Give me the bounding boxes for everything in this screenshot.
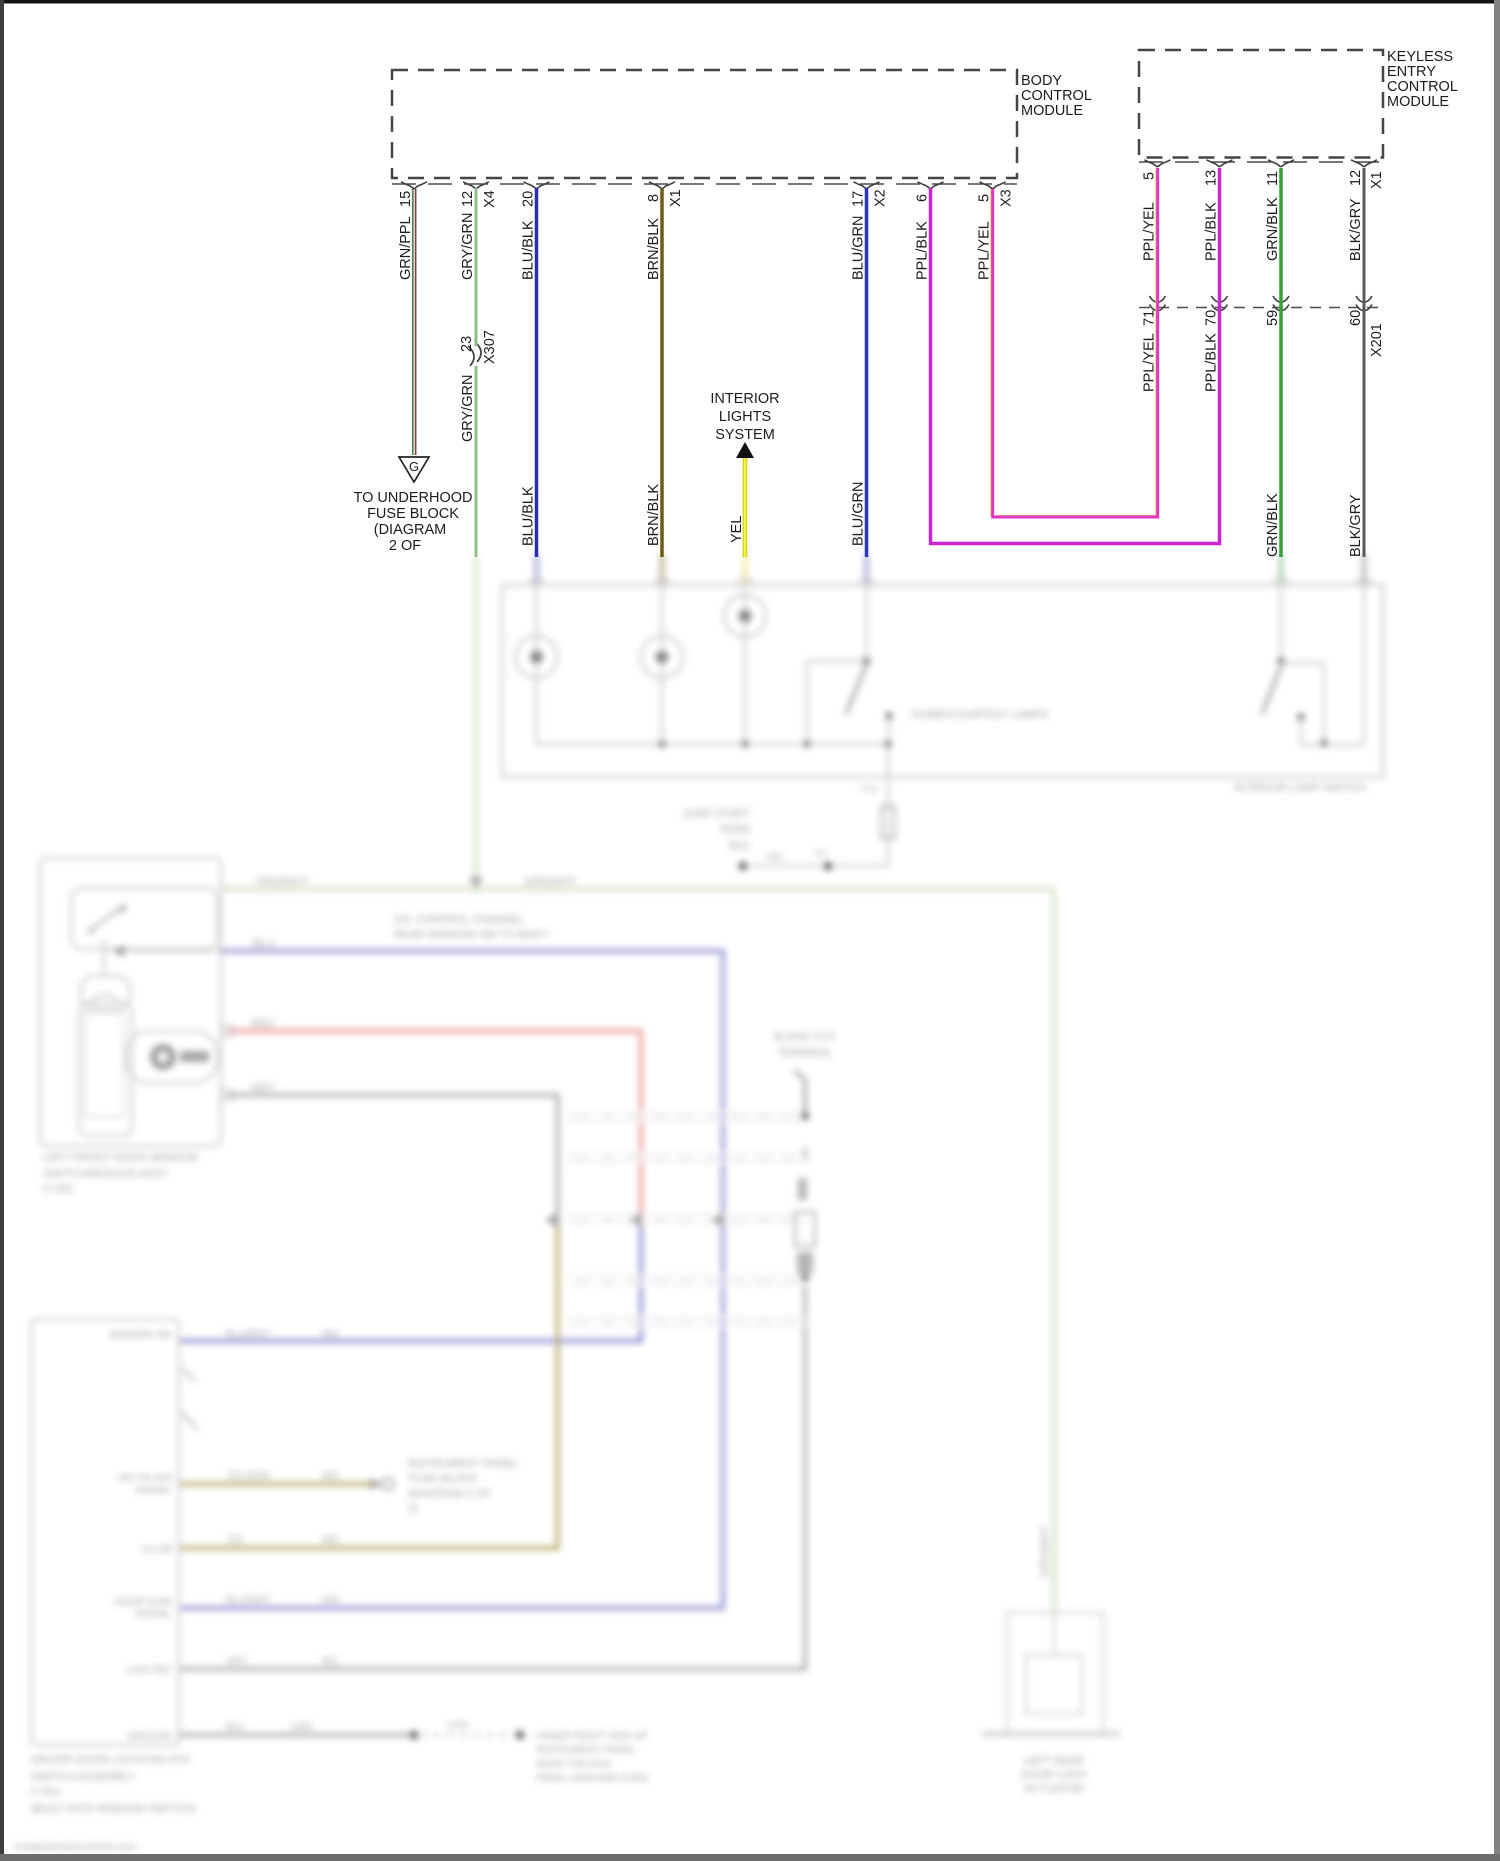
svg-text:PPL/BLK: PPL/BLK	[915, 221, 931, 280]
svg-text:KEYLESS: KEYLESS	[1387, 49, 1453, 65]
svg-text:BLK/GRY: BLK/GRY	[1348, 198, 1364, 261]
svg-text:X1: X1	[1369, 171, 1385, 189]
svg-text:BODY: BODY	[1021, 73, 1062, 89]
svg-text:PPL/YEL: PPL/YEL	[1141, 333, 1157, 392]
svg-text:GRN/BLK: GRN/BLK	[1265, 197, 1281, 261]
svg-text:692: 692	[322, 1535, 339, 1546]
svg-text:LOW REF: LOW REF	[126, 1665, 172, 1676]
svg-text:PPL/YEL: PPL/YEL	[977, 221, 993, 280]
svg-text:11: 11	[1265, 171, 1281, 186]
svg-text:TERMINAL: TERMINAL	[777, 1047, 833, 1059]
svg-text:SWITCH ASSEMBLY: SWITCH ASSEMBLY	[31, 1771, 136, 1783]
svg-text:6: 6	[915, 194, 931, 202]
svg-text:NEAR THE KICK: NEAR THE KICK	[536, 1759, 613, 1770]
svg-text:X3: X3	[999, 189, 1015, 207]
svg-text:(DIAGRAM 2 OF: (DIAGRAM 2 OF	[408, 1488, 491, 1500]
svg-text:12: 12	[1348, 170, 1364, 186]
svg-text:SYSTEM: SYSTEM	[715, 427, 775, 443]
svg-text:DOOR AJAR: DOOR AJAR	[114, 1597, 172, 1608]
svg-text:GRN/PPL: GRN/PPL	[398, 216, 414, 280]
svg-text:GRY: GRY	[251, 1082, 275, 1094]
svg-text:15: 15	[398, 191, 414, 207]
svg-text:INTERIOR: INTERIOR	[710, 391, 779, 407]
svg-text:SIGNAL: SIGNAL	[135, 1485, 172, 1496]
svg-text:G: G	[409, 459, 419, 474]
svg-text:GRN/BLK: GRN/BLK	[1265, 493, 1281, 557]
svg-text:TO UNDERHOOD: TO UNDERHOOD	[354, 490, 473, 506]
svg-text:(DIAGRAM: (DIAGRAM	[374, 522, 447, 538]
svg-text:S/C CONTROL CHANNEL: S/C CONTROL CHANNEL	[394, 914, 524, 926]
svg-text:20: 20	[521, 191, 537, 207]
svg-text:MODULE: MODULE	[1387, 94, 1449, 110]
svg-text:GRN/WHT: GRN/WHT	[256, 876, 309, 888]
svg-text:X307: X307	[482, 330, 498, 364]
svg-text:LEFT FRONT DOOR WINDOW: LEFT FRONT DOOR WINDOW	[43, 1152, 198, 1164]
svg-text:G305: G305	[447, 1720, 469, 1730]
svg-text:GRY: GRY	[226, 1656, 248, 1667]
svg-text:YEL: YEL	[729, 516, 745, 543]
svg-text:GRN/WHT: GRN/WHT	[1039, 1525, 1051, 1578]
svg-text:13: 13	[1204, 170, 1220, 186]
svg-text:PPL/YEL: PPL/YEL	[1141, 202, 1157, 261]
svg-text:TERM: TERM	[719, 824, 750, 836]
svg-text:REAR WINDOW SW TO BODY: REAR WINDOW SW TO BODY	[394, 929, 549, 941]
svg-text:23: 23	[459, 336, 475, 352]
svg-text:693: 693	[322, 1471, 339, 1482]
svg-text:59: 59	[1265, 310, 1281, 326]
svg-text:BRN/BLK: BRN/BLK	[646, 484, 662, 546]
svg-text:INSTRUMENT PANEL: INSTRUMENT PANEL	[408, 1458, 518, 1470]
svg-text:X201: X201	[1369, 323, 1385, 357]
svg-text:2 OF: 2 OF	[389, 538, 421, 554]
svg-text:LEFT REAR: LEFT REAR	[1024, 1755, 1084, 1767]
svg-text:5: 5	[1141, 172, 1157, 180]
svg-text:X2: X2	[873, 189, 889, 207]
svg-text:CONTROL: CONTROL	[1387, 79, 1458, 95]
svg-text:5: 5	[977, 194, 993, 202]
svg-text:FUSE BLOCK: FUSE BLOCK	[408, 1473, 478, 1485]
svg-text:(BUILT INTO WINDOW SWITCH): (BUILT INTO WINDOW SWITCH)	[31, 1803, 195, 1815]
svg-text:YEL/GRN: YEL/GRN	[226, 1471, 270, 1482]
svg-text:GROUND: GROUND	[128, 1731, 172, 1742]
svg-text:WINDOW SW: WINDOW SW	[109, 1330, 172, 1341]
svg-text:8: 8	[646, 194, 662, 202]
svg-text:ILLUM: ILLUM	[143, 1544, 172, 1555]
svg-text:SIGNAL: SIGNAL	[135, 1609, 172, 1620]
svg-text:MODULE: MODULE	[1021, 103, 1083, 119]
svg-text:C-501: C-501	[31, 1786, 61, 1798]
svg-text:DOME/COURTESY LAMPS: DOME/COURTESY LAMPS	[912, 709, 1049, 721]
svg-text:691: 691	[322, 1656, 339, 1667]
svg-text:YEL: YEL	[226, 1535, 245, 1546]
svg-text:DOOR LOCK: DOOR LOCK	[1021, 1769, 1088, 1781]
svg-text:695: 695	[322, 1595, 339, 1606]
svg-text:BLU/GRN: BLU/GRN	[851, 482, 867, 546]
svg-text:BLU/BLK: BLU/BLK	[521, 486, 537, 546]
svg-text:DRIVER DOOR LOCK/UNLOCK: DRIVER DOOR LOCK/UNLOCK	[31, 1754, 191, 1766]
svg-text:GRY/GRN: GRY/GRN	[460, 213, 476, 280]
svg-text:LIGHTS: LIGHTS	[719, 409, 771, 425]
svg-text:GRY/GRN: GRY/GRN	[460, 375, 476, 442]
svg-text:1250: 1250	[290, 1722, 313, 1733]
svg-text:C2: C2	[815, 848, 827, 858]
svg-text:INTERIOR LAMP SWITCH: INTERIOR LAMP SWITCH	[1234, 782, 1366, 794]
svg-text:BLK: BLK	[226, 1722, 245, 1733]
svg-text:17: 17	[851, 191, 867, 207]
svg-text:troubleshootmyvehicle.com: troubleshootmyvehicle.com	[15, 1842, 136, 1853]
svg-text:70: 70	[1204, 310, 1220, 326]
svg-text:PANEL (GROUND G305): PANEL (GROUND G305)	[536, 1773, 649, 1784]
svg-text:12: 12	[460, 191, 476, 207]
svg-text:BLU/WHT: BLU/WHT	[226, 1329, 271, 1340]
svg-text:2): 2)	[408, 1503, 418, 1515]
svg-text:RED: RED	[251, 1018, 274, 1030]
svg-text:JUMP START: JUMP START	[682, 808, 750, 820]
svg-text:BLU/WHT: BLU/WHT	[226, 1595, 271, 1606]
svg-text:X4: X4	[482, 190, 498, 208]
svg-text:BRN/BLK: BRN/BLK	[646, 218, 662, 280]
svg-text:BLK/GRY: BLK/GRY	[1348, 494, 1364, 557]
svg-text:ENTRY: ENTRY	[1387, 64, 1436, 80]
svg-text:KEY-IN IGN: KEY-IN IGN	[119, 1473, 172, 1484]
svg-text:60: 60	[1348, 310, 1364, 326]
svg-text:BLU/BLK: BLU/BLK	[521, 220, 537, 280]
svg-text:S28: S28	[766, 852, 782, 862]
svg-text:BLK: BLK	[729, 840, 750, 852]
svg-text:UNDER RIGHT SIDE OF: UNDER RIGHT SIDE OF	[536, 1731, 648, 1742]
svg-text:GRN/WHT: GRN/WHT	[524, 876, 577, 888]
svg-text:BLU/GRN: BLU/GRN	[851, 216, 867, 280]
svg-text:FUSE BLOCK: FUSE BLOCK	[367, 506, 459, 522]
svg-text:C-302: C-302	[43, 1183, 73, 1195]
svg-text:694: 694	[322, 1329, 339, 1340]
svg-text:F12: F12	[862, 784, 878, 794]
svg-text:SWITCH/MODULE ASSY: SWITCH/MODULE ASSY	[43, 1168, 169, 1180]
svg-text:INSTRUMENT PANEL: INSTRUMENT PANEL	[536, 1745, 637, 1756]
svg-text:X1: X1	[668, 189, 684, 207]
svg-text:71: 71	[1141, 310, 1157, 326]
svg-text:BLANK CUT: BLANK CUT	[774, 1031, 836, 1043]
svg-text:PPL/BLK: PPL/BLK	[1204, 333, 1220, 392]
svg-text:ACTUATOR: ACTUATOR	[1024, 1783, 1084, 1795]
svg-text:PPL/BLK: PPL/BLK	[1204, 202, 1220, 261]
svg-text:BLU: BLU	[253, 938, 274, 950]
svg-text:CONTROL: CONTROL	[1021, 88, 1092, 104]
